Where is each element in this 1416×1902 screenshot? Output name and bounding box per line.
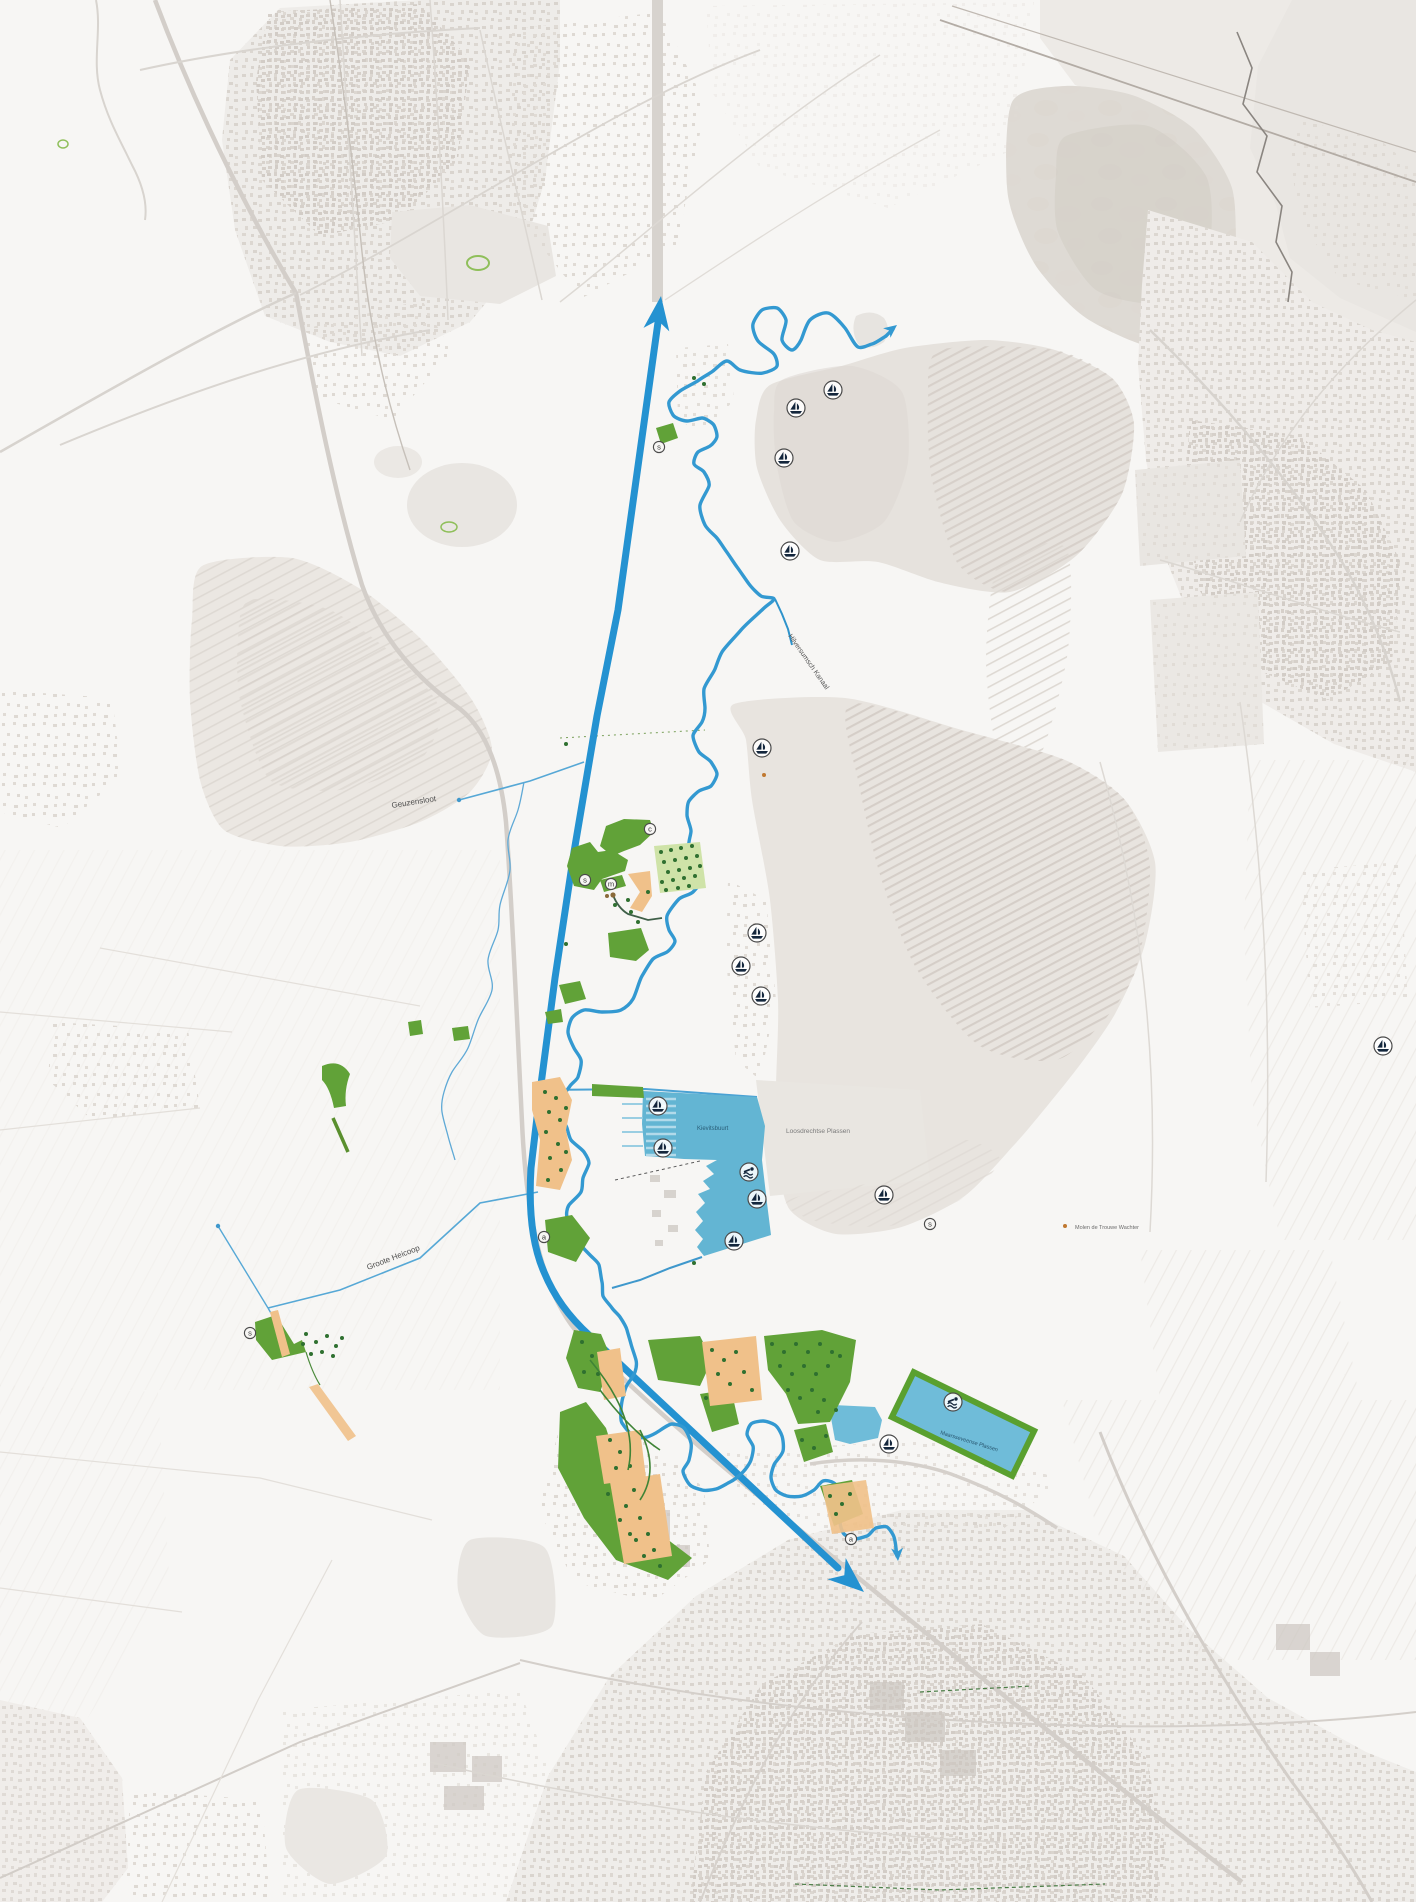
svg-text:s: s: [583, 876, 587, 885]
svg-text:Kievitsbuurt: Kievitsbuurt: [697, 1126, 729, 1132]
svg-text:Molen de Trouwe Wachter: Molen de Trouwe Wachter: [1075, 1225, 1139, 1231]
svg-text:m: m: [608, 880, 614, 889]
svg-text:Loosdrechtse Plassen: Loosdrechtse Plassen: [786, 1128, 850, 1135]
svg-text:s: s: [928, 1220, 932, 1229]
svg-text:c: c: [648, 825, 652, 834]
svg-text:s: s: [657, 443, 661, 452]
svg-text:s: s: [248, 1329, 252, 1338]
